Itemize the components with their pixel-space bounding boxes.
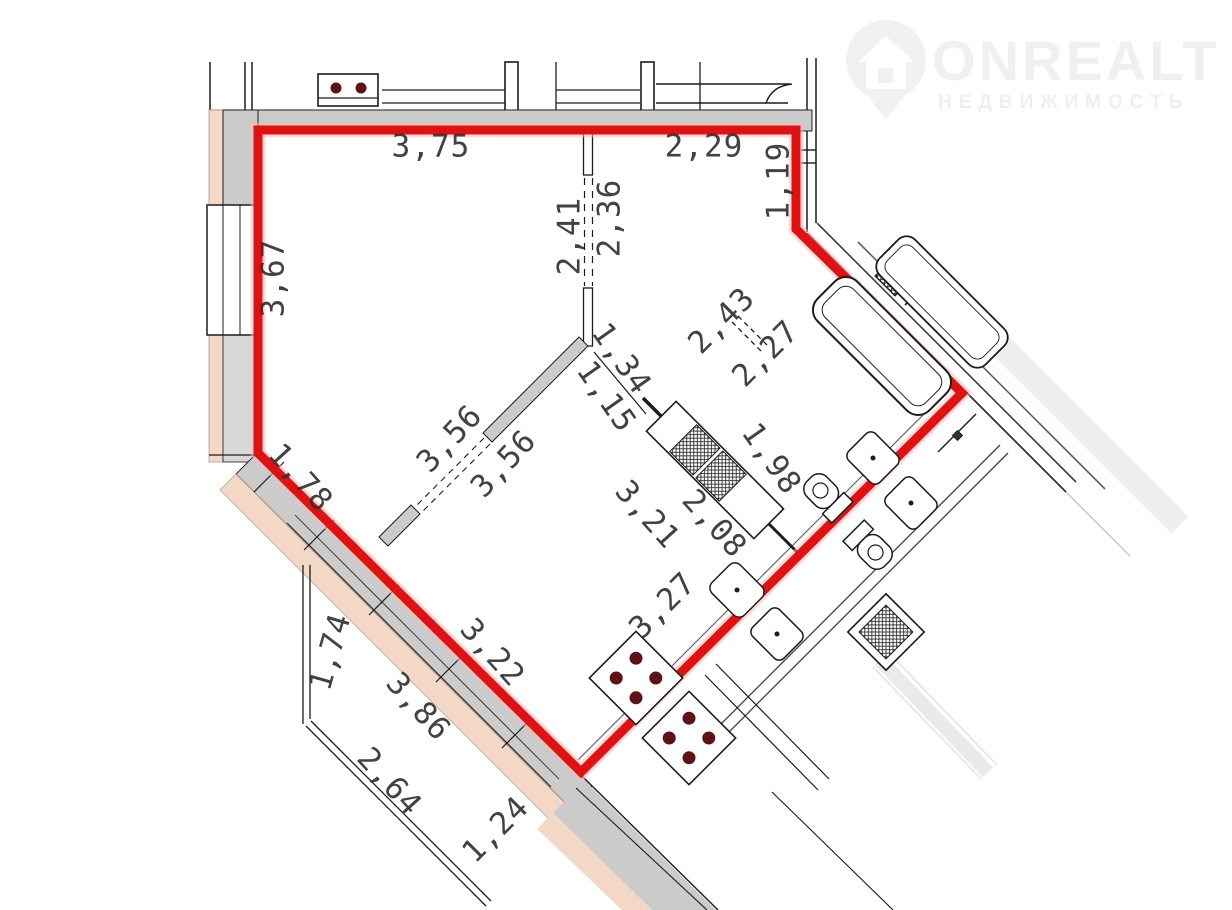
house-pin-icon — [842, 16, 930, 122]
left-wall-band — [207, 110, 258, 462]
dim-hall-depth-left: 2,41 — [555, 197, 586, 276]
neighbor-sink — [882, 474, 940, 532]
floorplan-screenshot: ONREALT НЕДВИЖИМОСТЬ 3,75 2,29 1,19 2,41… — [0, 0, 1232, 910]
dim-right-niche: 1,19 — [764, 142, 795, 221]
neighbor-sink-2 — [748, 605, 806, 663]
neighbor-washing-machine — [848, 594, 924, 670]
kitchen-sink — [707, 560, 768, 621]
dim-hall-depth-right: 2,36 — [595, 179, 626, 258]
bottom-wall-band — [537, 664, 893, 910]
watermark-brand: ONREALT — [932, 28, 1220, 93]
dim-top-room-width: 3,75 — [392, 132, 471, 163]
dim-left-wall: 3,67 — [259, 239, 290, 318]
bathroom-sink — [844, 429, 902, 487]
dim-top-hall-width: 2,29 — [665, 132, 744, 163]
left-window — [207, 205, 258, 335]
neighbor-stove-2burner — [318, 74, 378, 106]
watermark: ONREALT НЕДВИЖИМОСТЬ — [838, 12, 1218, 128]
diagonal-facade-band — [220, 452, 592, 824]
watermark-tagline: НЕДВИЖИМОСТЬ — [938, 92, 1189, 114]
neighbor-toilet — [843, 520, 897, 574]
floorplan-drawing — [0, 0, 1232, 910]
